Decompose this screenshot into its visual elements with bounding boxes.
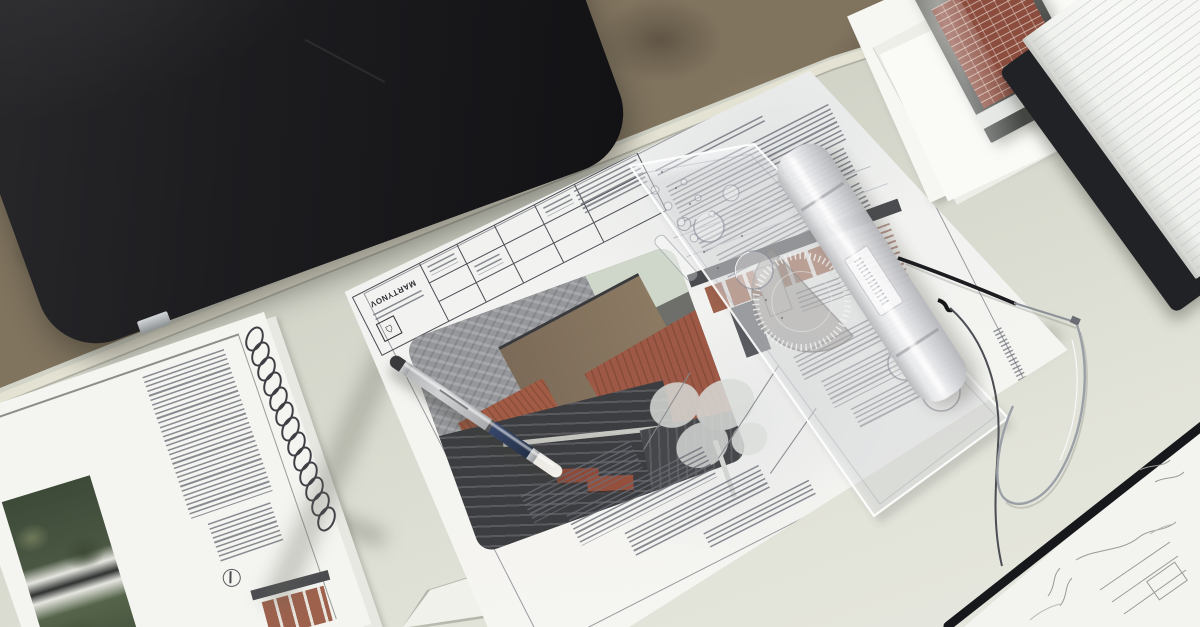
- sketch-layer: [0, 0, 1200, 627]
- architect-desk-photo: ⌂ MARTYNOV: [0, 0, 1200, 627]
- pencil-sketches: [1048, 460, 1187, 614]
- black-board-edge: [948, 404, 1200, 626]
- faint-pencil-marks: [1030, 524, 1174, 620]
